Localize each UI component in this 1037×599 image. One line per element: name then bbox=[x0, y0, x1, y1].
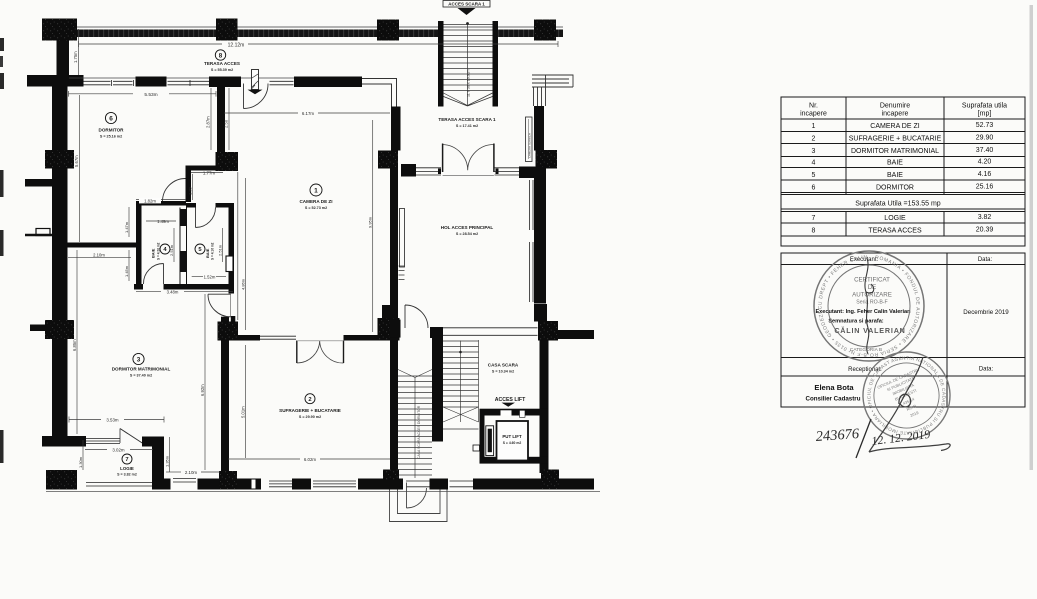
svg-text:6.92m: 6.92m bbox=[200, 384, 205, 396]
svg-text:3.53m: 3.53m bbox=[106, 418, 119, 423]
svg-text:1.52m: 1.52m bbox=[204, 275, 216, 280]
svg-text:CAMERA DE ZI: CAMERA DE ZI bbox=[299, 199, 332, 204]
svg-text:S = 4.20 m2: S = 4.20 m2 bbox=[157, 242, 161, 260]
svg-text:1: 1 bbox=[314, 187, 318, 194]
svg-text:ROMANIA • FONDUL DE AUTORIZARE: ROMANIA • FONDUL DE AUTORIZARE • SERIA R… bbox=[817, 254, 920, 357]
svg-text:5: 5 bbox=[198, 247, 202, 253]
svg-text:1.30m: 1.30m bbox=[78, 456, 83, 468]
svg-text:PUT LIFT: PUT LIFT bbox=[502, 434, 522, 439]
svg-text:1.45m: 1.45m bbox=[124, 265, 129, 277]
svg-text:Data:: Data: bbox=[978, 257, 993, 263]
svg-text:1.82m: 1.82m bbox=[144, 198, 156, 203]
svg-text:52.73: 52.73 bbox=[976, 122, 994, 129]
svg-text:29.90: 29.90 bbox=[976, 135, 994, 142]
svg-text:CĂLIN VALERIAN: CĂLIN VALERIAN bbox=[834, 326, 905, 335]
svg-text:25.16: 25.16 bbox=[976, 184, 994, 191]
svg-text:6: 6 bbox=[812, 185, 816, 192]
svg-text:5.53m: 5.53m bbox=[144, 92, 157, 98]
svg-text:S = 37.40 m2: S = 37.40 m2 bbox=[130, 374, 152, 378]
svg-text:CERTIFICAT: CERTIFICAT bbox=[854, 277, 890, 284]
svg-text:1.49m: 1.49m bbox=[157, 219, 169, 224]
svg-text:2.51m: 2.51m bbox=[169, 244, 174, 256]
svg-text:3: 3 bbox=[812, 148, 816, 155]
svg-text:5.01m: 5.01m bbox=[240, 406, 245, 418]
svg-text:3.82: 3.82 bbox=[978, 214, 992, 221]
svg-text:5: 5 bbox=[812, 172, 816, 179]
svg-text:2.51m: 2.51m bbox=[217, 244, 222, 256]
svg-text:Semnatura si parafa:: Semnatura si parafa: bbox=[828, 319, 883, 325]
svg-text:S = 3.82 m2: S = 3.82 m2 bbox=[117, 473, 137, 477]
svg-text:BAIE: BAIE bbox=[151, 248, 156, 258]
svg-text:CAMERA TEHNICA: CAMERA TEHNICA bbox=[528, 133, 532, 158]
svg-text:4: 4 bbox=[812, 160, 816, 167]
svg-text:S = 10.34 m2: S = 10.34 m2 bbox=[492, 370, 514, 374]
svg-text:TERASA ACCES: TERASA ACCES bbox=[204, 61, 240, 66]
svg-text:CASA SCARA ACCES DORMITOR: CASA SCARA ACCES DORMITOR bbox=[417, 405, 421, 459]
svg-text:Executant: Ing. Feher Calin Va: Executant: Ing. Feher Calin Valerian bbox=[815, 309, 911, 315]
svg-text:4.20: 4.20 bbox=[978, 159, 992, 166]
svg-text:BAIE: BAIE bbox=[205, 248, 210, 258]
svg-text:LOGIE: LOGIE bbox=[884, 215, 906, 222]
svg-text:ACCES SCARA 1: ACCES SCARA 1 bbox=[448, 1, 485, 6]
svg-text:ACCES LIFT: ACCES LIFT bbox=[495, 397, 526, 403]
svg-text:1.75m: 1.75m bbox=[73, 51, 78, 63]
svg-text:4: 4 bbox=[163, 247, 167, 253]
svg-text:7: 7 bbox=[812, 215, 816, 222]
svg-text:TERASA ACCES: TERASA ACCES bbox=[868, 228, 922, 235]
svg-text:5.67m: 5.67m bbox=[74, 155, 79, 167]
svg-text:2: 2 bbox=[308, 397, 311, 403]
svg-text:CATEGORIA B: CATEGORIA B bbox=[850, 347, 882, 353]
svg-text:3.48m: 3.48m bbox=[167, 290, 179, 295]
svg-text:11 tr 30 x 16,6cm: 11 tr 30 x 16,6cm bbox=[467, 69, 471, 97]
svg-text:Suprafata utila: Suprafata utila bbox=[962, 103, 1007, 110]
svg-text:S = 52.73 m2: S = 52.73 m2 bbox=[305, 206, 327, 210]
svg-text:2.50: 2.50 bbox=[224, 119, 229, 128]
svg-text:BAIE: BAIE bbox=[887, 160, 903, 167]
svg-text:12.12m: 12.12m bbox=[228, 42, 245, 48]
svg-text:4.16: 4.16 bbox=[978, 171, 992, 178]
svg-text:incapere: incapere bbox=[882, 111, 909, 118]
svg-text:SUFRAGERIE + BUCATARIE: SUFRAGERIE + BUCATARIE bbox=[279, 408, 341, 413]
svg-text:20.39: 20.39 bbox=[976, 227, 994, 234]
svg-text:HOL ACCES PRINCIPAL: HOL ACCES PRINCIPAL bbox=[441, 225, 494, 230]
svg-text:Nr.: Nr. bbox=[809, 103, 818, 110]
svg-text:6.85m: 6.85m bbox=[72, 339, 77, 351]
svg-text:incapere: incapere bbox=[800, 111, 827, 118]
svg-text:8: 8 bbox=[219, 52, 223, 59]
svg-text:DORMITOR: DORMITOR bbox=[99, 128, 125, 133]
svg-text:2.87m: 2.87m bbox=[206, 116, 211, 128]
svg-text:S = 55.39 m2: S = 55.39 m2 bbox=[211, 68, 233, 72]
svg-text:LOGIE: LOGIE bbox=[120, 466, 134, 471]
svg-text:S = 25.16 m2: S = 25.16 m2 bbox=[100, 135, 122, 139]
svg-text:SUFRAGERIE + BUCATARIE: SUFRAGERIE + BUCATARIE bbox=[849, 136, 942, 143]
svg-text:S = 4.16 m2: S = 4.16 m2 bbox=[211, 242, 215, 260]
svg-text:Data:: Data: bbox=[979, 367, 994, 373]
svg-text:S = 17.41 m2: S = 17.41 m2 bbox=[456, 124, 478, 128]
svg-text:3: 3 bbox=[137, 356, 141, 363]
svg-text:2.10m: 2.10m bbox=[93, 252, 105, 257]
svg-text:S = 28.54 m2: S = 28.54 m2 bbox=[456, 232, 478, 236]
svg-text:1: 1 bbox=[812, 123, 816, 130]
svg-text:3.02m: 3.02m bbox=[112, 448, 125, 453]
svg-text:7: 7 bbox=[125, 457, 128, 463]
svg-text:2: 2 bbox=[812, 136, 816, 143]
svg-text:6.17m: 6.17m bbox=[302, 111, 315, 116]
svg-text:[mp]: [mp] bbox=[978, 111, 992, 118]
svg-text:Decembrie 2019: Decembrie 2019 bbox=[963, 309, 1009, 316]
svg-text:2019: 2019 bbox=[909, 410, 920, 419]
svg-text:2.10m: 2.10m bbox=[185, 470, 198, 475]
svg-text:Denumire: Denumire bbox=[880, 103, 910, 110]
svg-text:6: 6 bbox=[109, 115, 113, 122]
svg-text:6.02m: 6.02m bbox=[304, 457, 317, 462]
svg-text:CAMERA DE ZI: CAMERA DE ZI bbox=[870, 123, 919, 130]
svg-text:Seria RO-B-F: Seria RO-B-F bbox=[856, 300, 887, 306]
svg-text:S = 4.60 m2: S = 4.60 m2 bbox=[503, 441, 522, 445]
svg-text:TERASA ACCES SCARA 1: TERASA ACCES SCARA 1 bbox=[438, 117, 496, 122]
svg-text:CASA SCARA: CASA SCARA bbox=[488, 363, 519, 368]
svg-text:DORMITOR MATRIMONIAL: DORMITOR MATRIMONIAL bbox=[112, 367, 171, 372]
svg-text:DORMITOR: DORMITOR bbox=[876, 185, 914, 192]
svg-text:37.40: 37.40 bbox=[976, 147, 994, 154]
svg-text:8: 8 bbox=[812, 228, 816, 235]
svg-text:Elena Bota: Elena Bota bbox=[814, 383, 854, 392]
svg-text:DORMITOR MATRIMONIAL: DORMITOR MATRIMONIAL bbox=[851, 148, 939, 155]
svg-text:4.86m: 4.86m bbox=[240, 278, 245, 290]
svg-text:1.35m: 1.35m bbox=[164, 455, 169, 467]
svg-text:9.95m: 9.95m bbox=[368, 216, 373, 228]
svg-text:243676: 243676 bbox=[815, 426, 860, 445]
svg-text:S = 29.90 m2: S = 29.90 m2 bbox=[299, 415, 321, 419]
svg-text:1.77m: 1.77m bbox=[203, 171, 216, 176]
svg-text:1.20: 1.20 bbox=[187, 186, 192, 195]
svg-text:Suprafata Utila =153.55 mp: Suprafata Utila =153.55 mp bbox=[855, 201, 941, 208]
svg-text:BAIE: BAIE bbox=[887, 172, 903, 179]
svg-text:Consilier Cadastru: Consilier Cadastru bbox=[805, 396, 860, 403]
svg-text:1.47m: 1.47m bbox=[124, 221, 129, 233]
